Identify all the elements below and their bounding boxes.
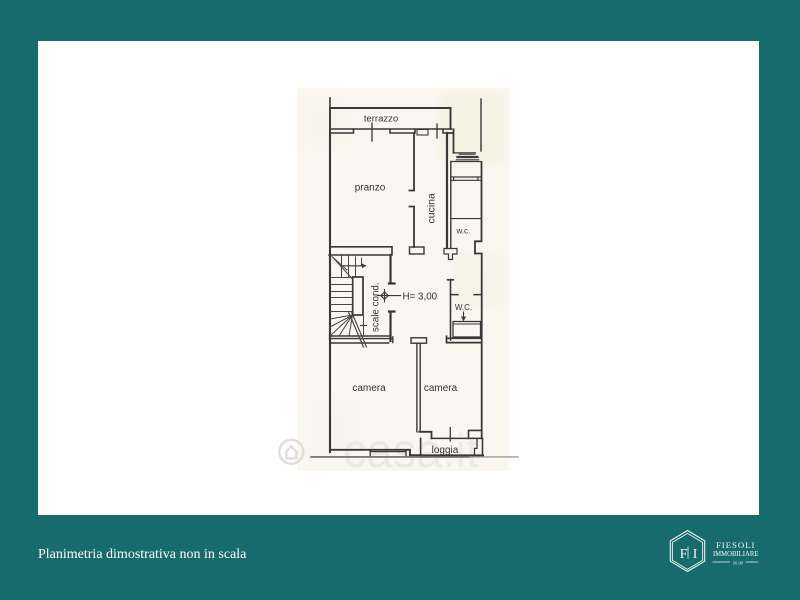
svg-text:F: F [680, 546, 688, 561]
svg-text:scale cond.: scale cond. [371, 282, 382, 332]
svg-text:w.c.: w.c. [456, 227, 471, 236]
svg-text:terrazzo: terrazzo [364, 114, 398, 125]
svg-text:W.C.: W.C. [455, 303, 472, 312]
svg-text:I: I [693, 546, 698, 561]
svg-text:DAL 1988: DAL 1988 [733, 561, 743, 566]
svg-text:pranzo: pranzo [355, 183, 386, 194]
svg-text:camera: camera [424, 383, 458, 394]
svg-text:camera: camera [352, 383, 386, 394]
svg-text:cucina: cucina [426, 193, 438, 224]
svg-text:IMMOBILIARE: IMMOBILIARE [713, 549, 759, 558]
svg-text:H= 3,00: H= 3,00 [403, 292, 438, 303]
svg-text:loggia: loggia [432, 445, 459, 456]
